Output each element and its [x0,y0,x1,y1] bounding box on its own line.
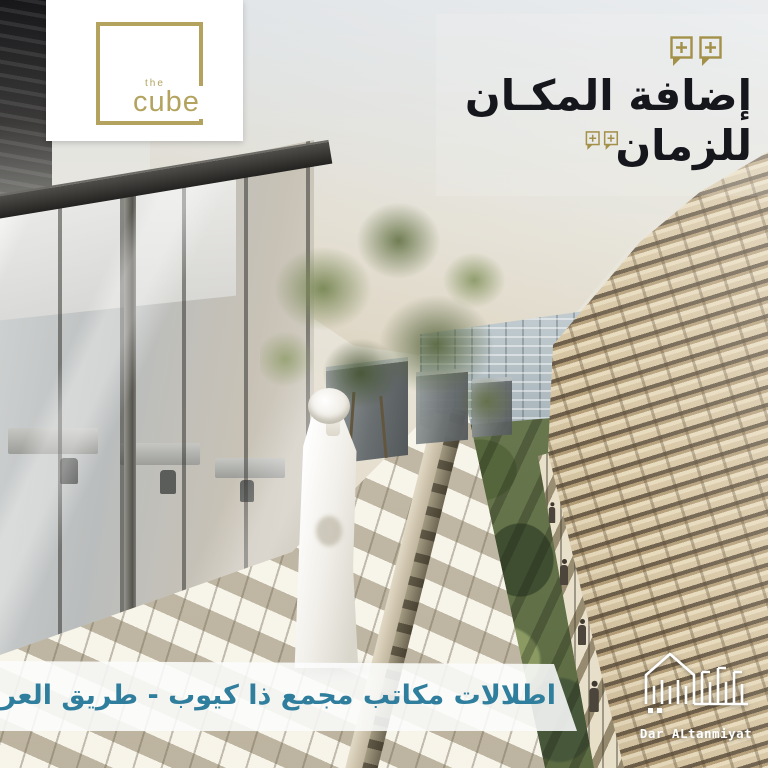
pedestrian-figure [589,688,599,712]
double-square-quote-icon [585,131,622,151]
house-kufic-icon [640,642,752,720]
white-turban [308,388,350,424]
pedestrian-figure [578,625,586,645]
caption-text: اطلالات مكاتب مجمع ذا كيوب - طريق العروب… [10,661,556,731]
pedestrian-figure [560,565,568,585]
headline: إضافة المكـان للزمان [465,72,752,169]
logo-word-cube: cube [130,86,203,119]
poster-canvas: إضافة المكـان للزمان اطلالات مكاتب مجمع … [0,0,768,768]
double-square-quote-icon [670,36,728,67]
headline-line1: إضافة المكـان [465,72,752,119]
pedestrian-figure [549,507,555,523]
the-cube-logo: the cube [46,0,243,141]
developer-wordmark: Dar ALtanmiyat [636,726,756,741]
man-in-thobe [286,388,372,678]
clasped-hands [316,516,342,546]
dar-altanmiyat-logo: Dar ALtanmiyat [636,642,756,741]
